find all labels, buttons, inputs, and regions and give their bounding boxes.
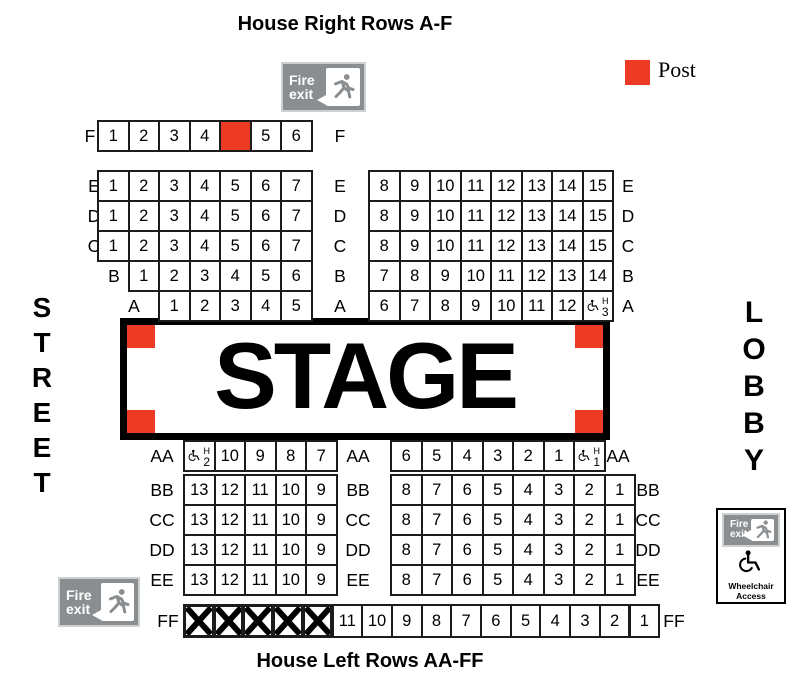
seat-B-7[interactable]: 7 <box>368 260 401 292</box>
seat-BB-3[interactable]: 3 <box>543 474 576 506</box>
seat-EE-10[interactable]: 10 <box>275 564 308 596</box>
seat-BB-7[interactable]: 7 <box>421 474 454 506</box>
seat-BB-1[interactable]: 1 <box>604 474 637 506</box>
seat-E-12[interactable]: 12 <box>490 170 523 202</box>
seat-DD-2[interactable]: 2 <box>573 534 606 566</box>
seat-EE-4[interactable]: 4 <box>512 564 545 596</box>
blocked-seat <box>302 604 334 638</box>
fire-exit-text-line1: Fire <box>66 588 92 602</box>
wheelchair-icon <box>578 449 592 468</box>
seat-C-10[interactable]: 10 <box>429 230 462 262</box>
lobby-letter: L <box>735 294 773 331</box>
seat-A-12[interactable]: 12 <box>551 290 584 322</box>
row-label-EE-right: EE <box>634 564 662 596</box>
post-legend-label: Post <box>658 57 696 83</box>
row-label-A-right: A <box>614 290 642 322</box>
post-cell <box>219 120 252 152</box>
seat-FF-11[interactable]: 11 <box>332 604 364 638</box>
seat-BB-11[interactable]: 11 <box>244 474 277 506</box>
seat-AA-4[interactable]: 4 <box>451 440 484 472</box>
seat-BB-2[interactable]: 2 <box>573 474 606 506</box>
wheelchair-access-box: FireexitWheelchairAccess <box>716 508 786 604</box>
seat-A-3[interactable]: 3 <box>219 290 252 322</box>
seat-BB-10[interactable]: 10 <box>275 474 308 506</box>
seat-B-8[interactable]: 8 <box>399 260 432 292</box>
seat-DD-5[interactable]: 5 <box>482 534 515 566</box>
title-house-left: House Left Rows AA-FF <box>120 650 620 673</box>
street-letter: T <box>24 325 60 360</box>
seat-AA-5[interactable]: 5 <box>421 440 454 472</box>
seat-E-13[interactable]: 13 <box>521 170 554 202</box>
row-label-CC-right: CC <box>634 504 662 536</box>
seat-DD-1[interactable]: 1 <box>604 534 637 566</box>
seat-DD-6[interactable]: 6 <box>451 534 484 566</box>
seat-E-8[interactable]: 8 <box>368 170 401 202</box>
blocked-seat <box>183 604 215 638</box>
fire-exit-text-line2: exit <box>289 87 315 101</box>
seat-C-3[interactable]: 3 <box>158 230 191 262</box>
seat-FF-8[interactable]: 8 <box>421 604 453 638</box>
stage-label: STAGE <box>214 329 516 423</box>
street-letter: T <box>24 465 60 500</box>
seat-C-4[interactable]: 4 <box>189 230 222 262</box>
seat-D-3[interactable]: 3 <box>158 200 191 232</box>
seat-CC-13[interactable]: 13 <box>183 504 216 536</box>
seat-FF-4[interactable]: 4 <box>539 604 571 638</box>
seat-AA-3[interactable]: 3 <box>482 440 515 472</box>
stage-post-top-right <box>575 325 603 348</box>
seat-EE-12[interactable]: 12 <box>214 564 247 596</box>
seat-A-4[interactable]: 4 <box>250 290 283 322</box>
seat-C-6[interactable]: 6 <box>250 230 283 262</box>
lobby-letter: O <box>735 331 773 368</box>
row-label-BB-left: BB <box>148 474 176 506</box>
fire-exit-sign: Fireexit <box>58 577 140 627</box>
seat-CC-4[interactable]: 4 <box>512 504 545 536</box>
title-house-right: House Right Rows A-F <box>95 13 595 36</box>
seat-EE-9[interactable]: 9 <box>305 564 338 596</box>
seat-D-9[interactable]: 9 <box>399 200 432 232</box>
seat-AA-8[interactable]: 8 <box>275 440 308 472</box>
seat-E-3[interactable]: 3 <box>158 170 191 202</box>
seat-AA-2[interactable]: 2 <box>512 440 545 472</box>
seat-A-7[interactable]: 7 <box>399 290 432 322</box>
seat-CC-8[interactable]: 8 <box>390 504 423 536</box>
seat-E-15[interactable]: 15 <box>582 170 615 202</box>
seat-D-14[interactable]: 14 <box>551 200 584 232</box>
wheelchair-icon <box>587 299 601 318</box>
stage-post-bottom-left <box>127 410 155 433</box>
seat-DD-13[interactable]: 13 <box>183 534 216 566</box>
seat-A-2[interactable]: 2 <box>189 290 222 322</box>
seat-E-1[interactable]: 1 <box>97 170 130 202</box>
row-label-AA-center: AA <box>336 440 380 472</box>
seat-EE-3[interactable]: 3 <box>543 564 576 596</box>
seat-E-5[interactable]: 5 <box>219 170 252 202</box>
seat-CC-2[interactable]: 2 <box>573 504 606 536</box>
seat-B-9[interactable]: 9 <box>429 260 462 292</box>
post-legend-swatch <box>625 60 650 85</box>
seat-D-13[interactable]: 13 <box>521 200 554 232</box>
street-label: STREET <box>24 290 60 500</box>
fire-exit-text-line2: exit <box>66 602 92 616</box>
row-label-EE-left: EE <box>148 564 176 596</box>
street-letter: E <box>24 430 60 465</box>
seat-F-5[interactable]: 5 <box>250 120 283 152</box>
seat-D-7[interactable]: 7 <box>280 200 313 232</box>
row-label-FF-right: FF <box>660 604 688 638</box>
seat-E-4[interactable]: 4 <box>189 170 222 202</box>
lobby-letter: Y <box>735 442 773 479</box>
seat-B-11[interactable]: 11 <box>490 260 523 292</box>
seat-D-1[interactable]: 1 <box>97 200 130 232</box>
row-label-E-right: E <box>614 170 642 202</box>
seat-FF-1[interactable]: 1 <box>629 604 661 638</box>
wheelchair-icon <box>738 549 765 581</box>
seat-D-6[interactable]: 6 <box>250 200 283 232</box>
seat-D-8[interactable]: 8 <box>368 200 401 232</box>
street-letter: E <box>24 395 60 430</box>
seat-B-10[interactable]: 10 <box>460 260 493 292</box>
seat-D-10[interactable]: 10 <box>429 200 462 232</box>
seat-CC-1[interactable]: 1 <box>604 504 637 536</box>
row-label-B-left: B <box>100 260 128 292</box>
seat-FF-3[interactable]: 3 <box>569 604 601 638</box>
row-label-AA-left: AA <box>148 440 176 472</box>
fire-exit-sign: Fireexit <box>281 62 366 112</box>
seat-AA-1[interactable]: 1 <box>543 440 576 472</box>
street-letter: R <box>24 360 60 395</box>
row-label-B-center: B <box>318 260 362 292</box>
seat-E-11[interactable]: 11 <box>460 170 493 202</box>
seat-A-5[interactable]: 5 <box>280 290 313 322</box>
seat-DD-8[interactable]: 8 <box>390 534 423 566</box>
seat-E-10[interactable]: 10 <box>429 170 462 202</box>
wheelchair-access-label: WheelchairAccess <box>728 581 773 602</box>
seat-B-12[interactable]: 12 <box>521 260 554 292</box>
stage-post-top-left <box>127 325 155 348</box>
wheelchair-icon <box>188 449 202 468</box>
seat-A-9[interactable]: 9 <box>460 290 493 322</box>
seat-A-1[interactable]: 1 <box>158 290 191 322</box>
row-label-BB-center: BB <box>336 474 380 506</box>
row-label-B-right: B <box>614 260 642 292</box>
seat-CC-5[interactable]: 5 <box>482 504 515 536</box>
seat-BB-12[interactable]: 12 <box>214 474 247 506</box>
seat-A-8[interactable]: 8 <box>429 290 462 322</box>
wheelchair-seat-AA-H1[interactable]: H1 <box>573 440 606 472</box>
row-label-AA-right: AA <box>604 440 632 472</box>
seat-E-9[interactable]: 9 <box>399 170 432 202</box>
row-label-DD-right: DD <box>634 534 662 566</box>
row-label-E-center: E <box>318 170 362 202</box>
seat-BB-5[interactable]: 5 <box>482 474 515 506</box>
seat-DD-9[interactable]: 9 <box>305 534 338 566</box>
seat-FF-10[interactable]: 10 <box>361 604 393 638</box>
seat-FF-6[interactable]: 6 <box>480 604 512 638</box>
row-label-CC-center: CC <box>336 504 380 536</box>
lobby-label: LOBBY <box>735 294 773 479</box>
seat-EE-7[interactable]: 7 <box>421 564 454 596</box>
seat-C-8[interactable]: 8 <box>368 230 401 262</box>
seat-A-11[interactable]: 11 <box>521 290 554 322</box>
seat-E-7[interactable]: 7 <box>280 170 313 202</box>
seat-B-6[interactable]: 6 <box>280 260 313 292</box>
row-label-DD-center: DD <box>336 534 380 566</box>
seat-EE-5[interactable]: 5 <box>482 564 515 596</box>
seat-A-10[interactable]: 10 <box>490 290 523 322</box>
seat-D-15[interactable]: 15 <box>582 200 615 232</box>
lobby-letter: B <box>735 405 773 442</box>
lobby-letter: B <box>735 368 773 405</box>
seat-EE-13[interactable]: 13 <box>183 564 216 596</box>
seat-F-6[interactable]: 6 <box>280 120 313 152</box>
seat-DD-11[interactable]: 11 <box>244 534 277 566</box>
row-label-F-center: F <box>318 120 362 152</box>
wheelchair-seat-AA-H2[interactable]: H2 <box>183 440 216 472</box>
seat-B-13[interactable]: 13 <box>551 260 584 292</box>
seat-D-2[interactable]: 2 <box>128 200 161 232</box>
seat-C-2[interactable]: 2 <box>128 230 161 262</box>
fire-exit-text-line1: Fire <box>289 73 315 87</box>
fire-exit-sign: Fireexit <box>722 513 780 547</box>
street-letter: S <box>24 290 60 325</box>
seat-FF-5[interactable]: 5 <box>510 604 542 638</box>
seat-CC-10[interactable]: 10 <box>275 504 308 536</box>
row-label-D-center: D <box>318 200 362 232</box>
seat-FF-2[interactable]: 2 <box>599 604 631 638</box>
seat-B-2[interactable]: 2 <box>158 260 191 292</box>
seat-AA-10[interactable]: 10 <box>214 440 247 472</box>
seat-CC-11[interactable]: 11 <box>244 504 277 536</box>
seat-BB-4[interactable]: 4 <box>512 474 545 506</box>
seat-FF-7[interactable]: 7 <box>450 604 482 638</box>
stage: STAGE <box>120 318 610 440</box>
seat-C-9[interactable]: 9 <box>399 230 432 262</box>
seat-C-7[interactable]: 7 <box>280 230 313 262</box>
theater-seating-chart: House Right Rows A-F Post STREET LOBBY S… <box>0 0 802 687</box>
seat-BB-6[interactable]: 6 <box>451 474 484 506</box>
seat-C-15[interactable]: 15 <box>582 230 615 262</box>
seat-BB-9[interactable]: 9 <box>305 474 338 506</box>
seat-F-1[interactable]: 1 <box>97 120 130 152</box>
seat-D-4[interactable]: 4 <box>189 200 222 232</box>
seat-DD-7[interactable]: 7 <box>421 534 454 566</box>
running-man-icon <box>326 68 360 106</box>
seat-B-4[interactable]: 4 <box>219 260 252 292</box>
row-label-A-center: A <box>318 290 362 322</box>
stage-post-bottom-right <box>575 410 603 433</box>
row-label-A-left: A <box>120 290 148 322</box>
seat-E-14[interactable]: 14 <box>551 170 584 202</box>
seat-EE-11[interactable]: 11 <box>244 564 277 596</box>
row-label-DD-left: DD <box>148 534 176 566</box>
seat-B-14[interactable]: 14 <box>582 260 615 292</box>
seat-AA-7[interactable]: 7 <box>305 440 338 472</box>
seat-E-2[interactable]: 2 <box>128 170 161 202</box>
row-label-BB-right: BB <box>634 474 662 506</box>
seat-A-6[interactable]: 6 <box>368 290 401 322</box>
seat-C-13[interactable]: 13 <box>521 230 554 262</box>
seat-CC-6[interactable]: 6 <box>451 504 484 536</box>
row-label-D-right: D <box>614 200 642 232</box>
row-label-FF-left: FF <box>154 604 182 638</box>
seat-C-1[interactable]: 1 <box>97 230 130 262</box>
seat-EE-8[interactable]: 8 <box>390 564 423 596</box>
seat-B-5[interactable]: 5 <box>250 260 283 292</box>
seat-DD-4[interactable]: 4 <box>512 534 545 566</box>
seat-FF-9[interactable]: 9 <box>391 604 423 638</box>
seat-AA-9[interactable]: 9 <box>244 440 277 472</box>
seat-D-5[interactable]: 5 <box>219 200 252 232</box>
seat-DD-10[interactable]: 10 <box>275 534 308 566</box>
seat-C-11[interactable]: 11 <box>460 230 493 262</box>
seat-C-12[interactable]: 12 <box>490 230 523 262</box>
blocked-seat <box>272 604 304 638</box>
row-label-C-right: C <box>614 230 642 262</box>
blocked-seat <box>213 604 245 638</box>
row-label-EE-center: EE <box>336 564 380 596</box>
row-label-C-center: C <box>318 230 362 262</box>
seat-CC-7[interactable]: 7 <box>421 504 454 536</box>
seat-F-4[interactable]: 4 <box>189 120 222 152</box>
seat-CC-9[interactable]: 9 <box>305 504 338 536</box>
seat-B-1[interactable]: 1 <box>128 260 161 292</box>
seat-E-6[interactable]: 6 <box>250 170 283 202</box>
running-man-icon <box>751 519 774 541</box>
seat-CC-3[interactable]: 3 <box>543 504 576 536</box>
running-man-icon <box>101 583 134 621</box>
row-label-CC-left: CC <box>148 504 176 536</box>
seat-D-12[interactable]: 12 <box>490 200 523 232</box>
seat-DD-12[interactable]: 12 <box>214 534 247 566</box>
seat-DD-3[interactable]: 3 <box>543 534 576 566</box>
seat-B-3[interactable]: 3 <box>189 260 222 292</box>
seat-C-14[interactable]: 14 <box>551 230 584 262</box>
seat-AA-6[interactable]: 6 <box>390 440 423 472</box>
seat-EE-6[interactable]: 6 <box>451 564 484 596</box>
seat-BB-8[interactable]: 8 <box>390 474 423 506</box>
seat-CC-12[interactable]: 12 <box>214 504 247 536</box>
wheelchair-seat-A-H3[interactable]: H3 <box>582 290 615 322</box>
seat-D-11[interactable]: 11 <box>460 200 493 232</box>
seat-EE-1[interactable]: 1 <box>604 564 637 596</box>
seat-F-3[interactable]: 3 <box>158 120 191 152</box>
seat-C-5[interactable]: 5 <box>219 230 252 262</box>
seat-EE-2[interactable]: 2 <box>573 564 606 596</box>
seat-BB-13[interactable]: 13 <box>183 474 216 506</box>
seat-F-2[interactable]: 2 <box>128 120 161 152</box>
blocked-seat <box>242 604 274 638</box>
